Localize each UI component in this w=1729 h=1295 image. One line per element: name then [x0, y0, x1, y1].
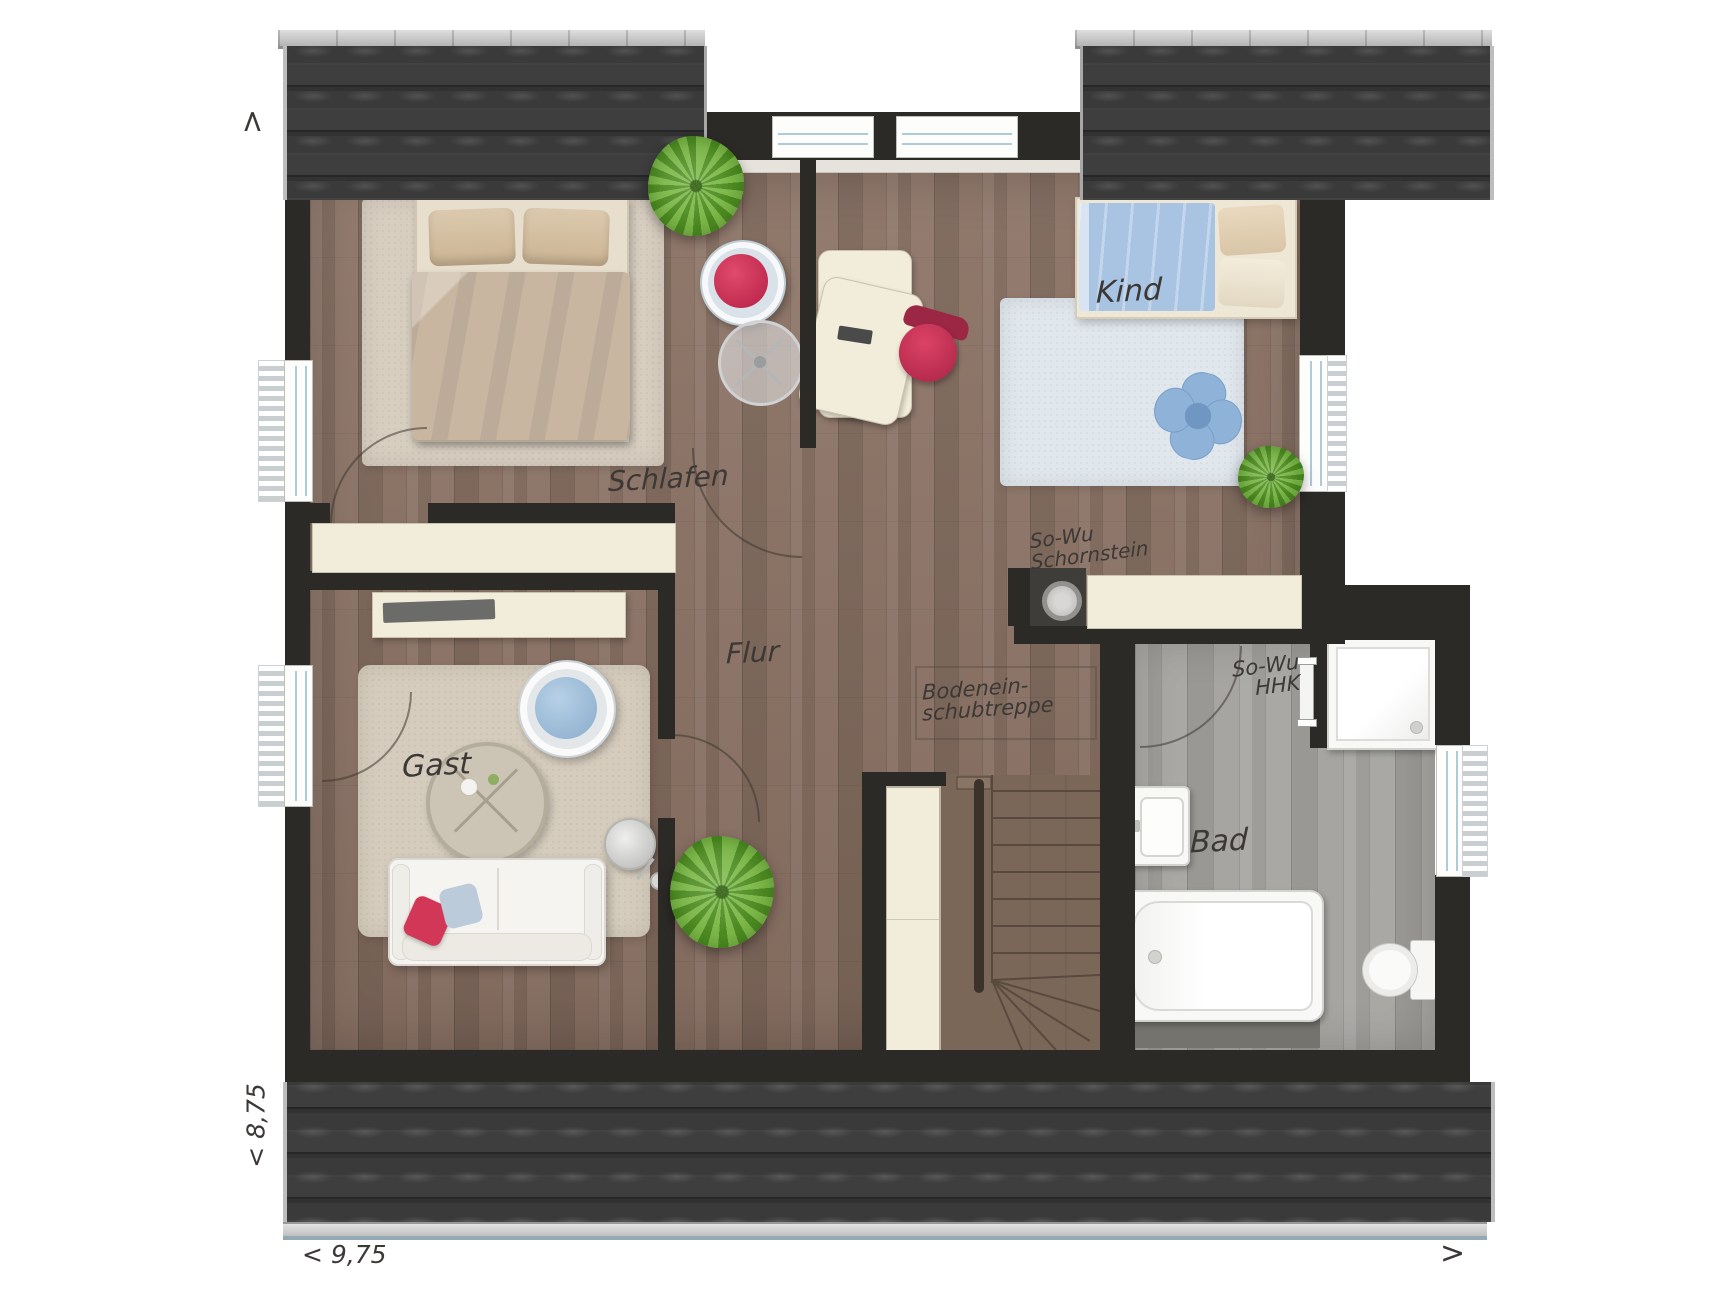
- wall: [800, 112, 816, 448]
- gutter-accent-line: [283, 1236, 1487, 1240]
- roof-top-right: [1080, 46, 1494, 200]
- wall: [1300, 490, 1345, 585]
- sideboard-left: [312, 523, 676, 573]
- roof-bottom: [283, 1082, 1495, 1222]
- dimension-depth: < 8,75: [242, 1070, 271, 1182]
- note-bodentreppe: Bodenein- schubtreppe: [922, 673, 1053, 724]
- wall-newel: [862, 772, 886, 1050]
- wall: [658, 571, 675, 739]
- window-glass: [902, 133, 1012, 145]
- room-label-kind: Kind: [1096, 272, 1163, 311]
- room-label-schlafen: Schlafen: [608, 459, 729, 498]
- wall: [658, 818, 675, 1050]
- wall-newel-cap: [862, 772, 946, 786]
- handrail: [974, 779, 984, 993]
- cabinet-divider: [887, 919, 939, 920]
- wall: [1100, 626, 1135, 1050]
- wall: [285, 1050, 1470, 1082]
- bathtub: [1122, 890, 1324, 1022]
- sofa: [388, 858, 606, 966]
- sink-bowl: [1140, 797, 1184, 857]
- radiator: [1299, 658, 1314, 726]
- wall: [428, 503, 675, 523]
- sink: [1128, 786, 1190, 866]
- window-hatch: [258, 360, 286, 502]
- toilet: [1362, 938, 1436, 1000]
- staircase: [940, 775, 1100, 1050]
- window-glass: [1310, 361, 1322, 486]
- window-glass: [295, 671, 307, 801]
- cushion-blue: [438, 882, 485, 930]
- wall: [1300, 585, 1470, 640]
- radiator-cap: [1297, 657, 1317, 665]
- window-gast: [284, 665, 313, 807]
- chair-cushion-blue: [535, 677, 597, 739]
- double-bed: [415, 198, 629, 442]
- window-hatch: [1462, 745, 1488, 877]
- lounge-chair-red: [700, 240, 786, 326]
- window-glass: [778, 133, 868, 145]
- wall: [1300, 200, 1345, 355]
- wall: [285, 805, 310, 1050]
- wall: [700, 112, 1080, 160]
- chimney-flue: [1042, 581, 1082, 621]
- window-dormer-2: [896, 116, 1018, 158]
- arrow-up-icon: >: [235, 109, 270, 134]
- window-hatch: [1327, 355, 1347, 492]
- room-label-flur: Flur: [726, 635, 780, 671]
- duvet: [412, 272, 630, 440]
- room-label-gast: Gast: [402, 746, 472, 785]
- wall: [285, 503, 330, 523]
- tall-cabinet: [885, 786, 941, 1052]
- roof-top-left: [283, 46, 707, 200]
- lowboard: [372, 592, 626, 638]
- lounge-chair-blue: [518, 660, 616, 758]
- radiator-cap: [1297, 719, 1317, 727]
- side-table-glass: [718, 320, 804, 406]
- room-label-bad: Bad: [1190, 822, 1249, 860]
- dimension-width: < 9,75: [302, 1240, 387, 1269]
- shower-drain: [1410, 721, 1423, 734]
- wall: [1435, 640, 1470, 745]
- wall: [285, 200, 310, 360]
- bathtub-drain: [1148, 950, 1162, 964]
- chair-cushion-red: [714, 254, 768, 308]
- pillow: [1217, 204, 1286, 256]
- window-dormer-1: [772, 116, 874, 158]
- window-glass: [295, 366, 307, 496]
- pillow: [428, 208, 516, 267]
- wall: [285, 571, 675, 590]
- floor-plan-sheet: Schlafen Kind Flur Gast Bad So-Wu Schorn…: [0, 0, 1729, 1295]
- wall: [1008, 568, 1030, 626]
- wall: [1435, 875, 1470, 1050]
- table-cap: [754, 356, 766, 368]
- table-decor: [488, 774, 499, 785]
- window-schlafen: [284, 360, 313, 502]
- window-hatch: [258, 665, 286, 807]
- toilet-bowl: [1362, 943, 1418, 997]
- sideboard-right: [1087, 575, 1302, 629]
- chimney: [1030, 568, 1086, 626]
- arrow-right-icon: >: [1440, 1236, 1465, 1271]
- shower: [1327, 638, 1439, 750]
- pillow: [522, 208, 610, 267]
- sofa-seat-split: [497, 868, 499, 930]
- note-hhk: So-Wu HHK: [1227, 652, 1301, 703]
- media-object: [383, 599, 496, 623]
- window-bad: [1436, 745, 1464, 877]
- pillow: [1218, 257, 1286, 308]
- roof-gutter: [283, 1222, 1487, 1236]
- window-glass: [1446, 751, 1458, 871]
